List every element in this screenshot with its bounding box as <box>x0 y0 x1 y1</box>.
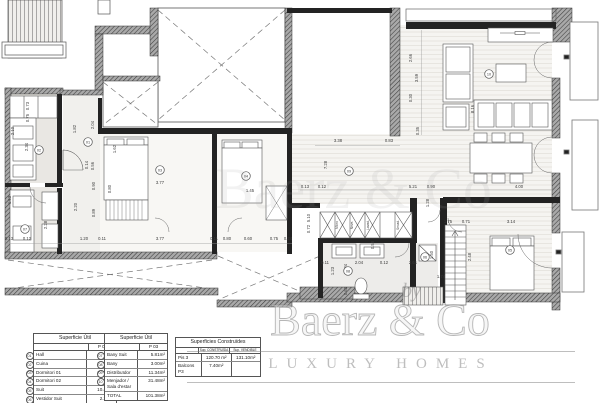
table-row: 08Bany3.00m² <box>105 360 167 369</box>
table-cell: 131.10m² <box>231 354 261 362</box>
room-ref-bubble: 07 <box>97 352 105 360</box>
dimension-label: 1.75 <box>444 219 453 224</box>
table-cell: Balcons P3 <box>176 362 201 375</box>
dimension-label: 0.83 <box>385 138 394 143</box>
dimension-label: 1.62 <box>112 144 117 153</box>
room-ref-bubble: 02 <box>26 361 34 369</box>
room-ref-bubble: 10 <box>97 378 105 386</box>
area-table-useful-2: Superficie Útil P 03 07Bany Suit5.81m²08… <box>104 333 168 401</box>
room-name-cell: Cuina <box>34 360 86 368</box>
dimension-label: 0.35 <box>415 126 420 135</box>
dimension-label: 1.20 <box>80 236 89 241</box>
table-cell: 120.70 m² <box>201 354 231 362</box>
room-name-cell: Bany Suit <box>105 351 137 359</box>
dimension-label: 1.53 <box>7 195 12 204</box>
table-row: 07Bany Suit5.81m² <box>105 351 167 360</box>
dimension-label: 0.60 <box>244 236 253 241</box>
room-name-cell: Bany <box>105 360 137 368</box>
room-bubble-number: 03 <box>158 168 162 172</box>
table-row: Balcons P37.40m² <box>176 362 260 375</box>
col-header-sellable: Sup. VENDIBLE <box>229 348 260 353</box>
room-name-cell: Distribuïdor <box>105 369 137 377</box>
dimension-label: 0.73 <box>25 101 30 110</box>
dimension-label: 0.75 <box>25 113 30 122</box>
dimension-label: 0.62 <box>343 286 348 295</box>
room-area-cell: 11.34m² <box>137 369 167 377</box>
dimension-label: 2.61 <box>409 260 418 265</box>
dimension-label: 0.72 <box>306 224 311 233</box>
dimension-label: 0.30 <box>408 93 413 102</box>
room-name-cell: Dormitori 01 <box>34 369 86 377</box>
table-cell <box>231 362 261 375</box>
dimension-label: 3.38 <box>334 138 343 143</box>
dimension-label: 0.89 <box>91 208 96 217</box>
dimension-label: 0.14 <box>84 160 89 169</box>
roof-edge <box>406 9 556 21</box>
room-bubble-number: 10 <box>487 72 491 76</box>
table-title: Superficie Útil <box>105 334 167 344</box>
dimension-label: 2.48 <box>467 252 472 261</box>
table-cell: 7.40m² <box>201 362 231 375</box>
dimension-label: 3.59 <box>414 73 419 82</box>
dimension-label: 2.28 <box>43 220 48 229</box>
table-cell: Pis 3 <box>176 354 201 362</box>
col-header-constructed: Sup. CONSTRUÏDA <box>198 348 229 353</box>
room-bubble-number: 02 <box>37 148 41 152</box>
dimension-label: 1.45 <box>246 188 255 193</box>
dimension-label: 0.24 <box>284 236 293 241</box>
closet-label: Micro <box>335 221 339 229</box>
closet-label: Secad. <box>396 220 400 230</box>
table-subheader: P 03 <box>105 344 167 352</box>
room-area-cell: 101.38m² <box>137 392 167 400</box>
dimension-label: 4.00 <box>515 184 524 189</box>
dimension-label: 2.04 <box>355 260 364 265</box>
dimension-label: 0.11 <box>98 236 107 241</box>
room-name-cell: Dormitori 02 <box>34 377 86 385</box>
table-row: Pis 3120.70 m²131.10m² <box>176 354 260 363</box>
room-bubble-number: 01 <box>86 140 90 144</box>
dimension-label: 0.12 <box>318 184 327 189</box>
dimension-label: 3.77 <box>156 236 165 241</box>
dimension-label: 8.16 <box>470 104 475 113</box>
dimension-label: 7.28 <box>323 160 328 169</box>
table-row: TOTAL101.38m² <box>105 392 167 400</box>
room-name-cell: Vestidor Suit <box>34 395 86 403</box>
dimension-label: 0.58 <box>370 240 375 249</box>
dimension-label: 2.34 <box>24 142 29 151</box>
dimension-label: 0.90 <box>427 184 436 189</box>
room-area-cell: 31.48m² <box>137 377 167 390</box>
dimension-label: 1.74 <box>437 274 446 279</box>
dimension-label: 0.13 <box>301 184 310 189</box>
dimension-label: 2.66 <box>408 53 413 62</box>
room-bubble-number: 09 <box>347 169 351 173</box>
dimension-label: 2.20 <box>73 202 78 211</box>
dimension-label: 3.77 <box>156 180 165 185</box>
room-ref-bubble: 01 <box>26 352 34 360</box>
dimension-label: 1.23 <box>330 266 335 275</box>
balconies <box>556 22 598 292</box>
closet-label: Lavad. <box>366 220 370 230</box>
table-title: Superficies Construïdes <box>176 338 260 348</box>
room-area-cell: 5.81m² <box>137 351 167 359</box>
room-name-cell: Suit <box>34 386 86 394</box>
dimension-label: 0.80 <box>107 184 112 193</box>
area-table-built: Superficies Construïdes Sup. CONSTRUÏDA … <box>175 337 261 377</box>
dimension-label: 0.71 <box>462 219 471 224</box>
room-ref-bubble: 06 <box>26 396 34 403</box>
dimension-label: 0.11 <box>321 260 330 265</box>
room-name-cell: TOTAL <box>105 392 137 400</box>
room-bubble-number: 07 <box>23 227 27 231</box>
dimension-label: 5.10 <box>306 213 311 222</box>
dimension-label: 0.80 <box>223 236 232 241</box>
room-name-cell: Hall <box>34 351 86 359</box>
room-ref-bubble: 09 <box>97 370 105 378</box>
floor-plan-page: 3.380.830.130.125.210.904.007.282.663.59… <box>0 0 600 403</box>
dimension-label: 0.90 <box>91 181 96 190</box>
room-bubble-number: 05 <box>508 248 512 252</box>
dimension-label: 0.75 <box>270 236 279 241</box>
dimension-label: 2.10 <box>10 126 15 135</box>
dimension-label: 0.56 <box>90 161 95 170</box>
room-area-cell: 3.00m² <box>137 360 167 368</box>
dimension-label: 2.04 <box>90 120 95 129</box>
dimension-label: 1.50 <box>429 250 434 259</box>
table-row: 10Menjador / Sala d'estar31.48m² <box>105 377 167 391</box>
plan-level-label: P 03 <box>139 344 167 351</box>
dimension-label: 0.13 <box>5 236 14 241</box>
room-name-cell: Menjador / Sala d'estar <box>105 377 137 390</box>
room-ref-bubble: 04 <box>26 378 34 386</box>
room-ref-bubble: 03 <box>26 370 34 378</box>
dimension-label: 1.28 <box>425 198 430 207</box>
table-row: 09Distribuïdor11.34m² <box>105 369 167 378</box>
exterior-stair <box>2 0 110 58</box>
room-bubble-number: 06 <box>423 255 427 259</box>
dimension-label: 0.12 <box>23 236 32 241</box>
closet-label: Neve. <box>350 221 354 229</box>
room-ref-bubble: 05 <box>26 387 34 395</box>
dimension-label: 5.21 <box>409 184 418 189</box>
dimension-label: 0.11 <box>210 236 219 241</box>
dimension-label: 3.14 <box>507 219 516 224</box>
room-bubble-number: 04 <box>244 174 248 178</box>
room-ref-bubble: 08 <box>97 361 105 369</box>
room-bubble-number: 08 <box>346 269 350 273</box>
dimension-label: 0.12 <box>380 260 389 265</box>
dimension-label: 1.82 <box>72 124 77 133</box>
